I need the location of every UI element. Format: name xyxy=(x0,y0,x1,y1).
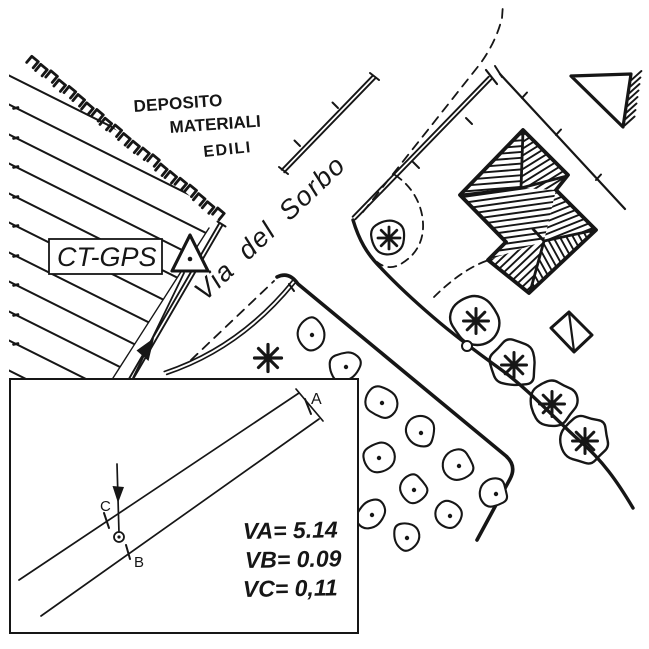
svg-text:VA= 5.14: VA= 5.14 xyxy=(243,516,338,544)
svg-text:A: A xyxy=(311,391,322,408)
svg-text:C: C xyxy=(100,498,111,515)
svg-text:VB= 0.09: VB= 0.09 xyxy=(245,545,342,573)
svg-text:VC= 0,11: VC= 0,11 xyxy=(243,574,338,602)
svg-text:B: B xyxy=(134,554,144,571)
svg-text:CT-GPS: CT-GPS xyxy=(57,242,157,272)
